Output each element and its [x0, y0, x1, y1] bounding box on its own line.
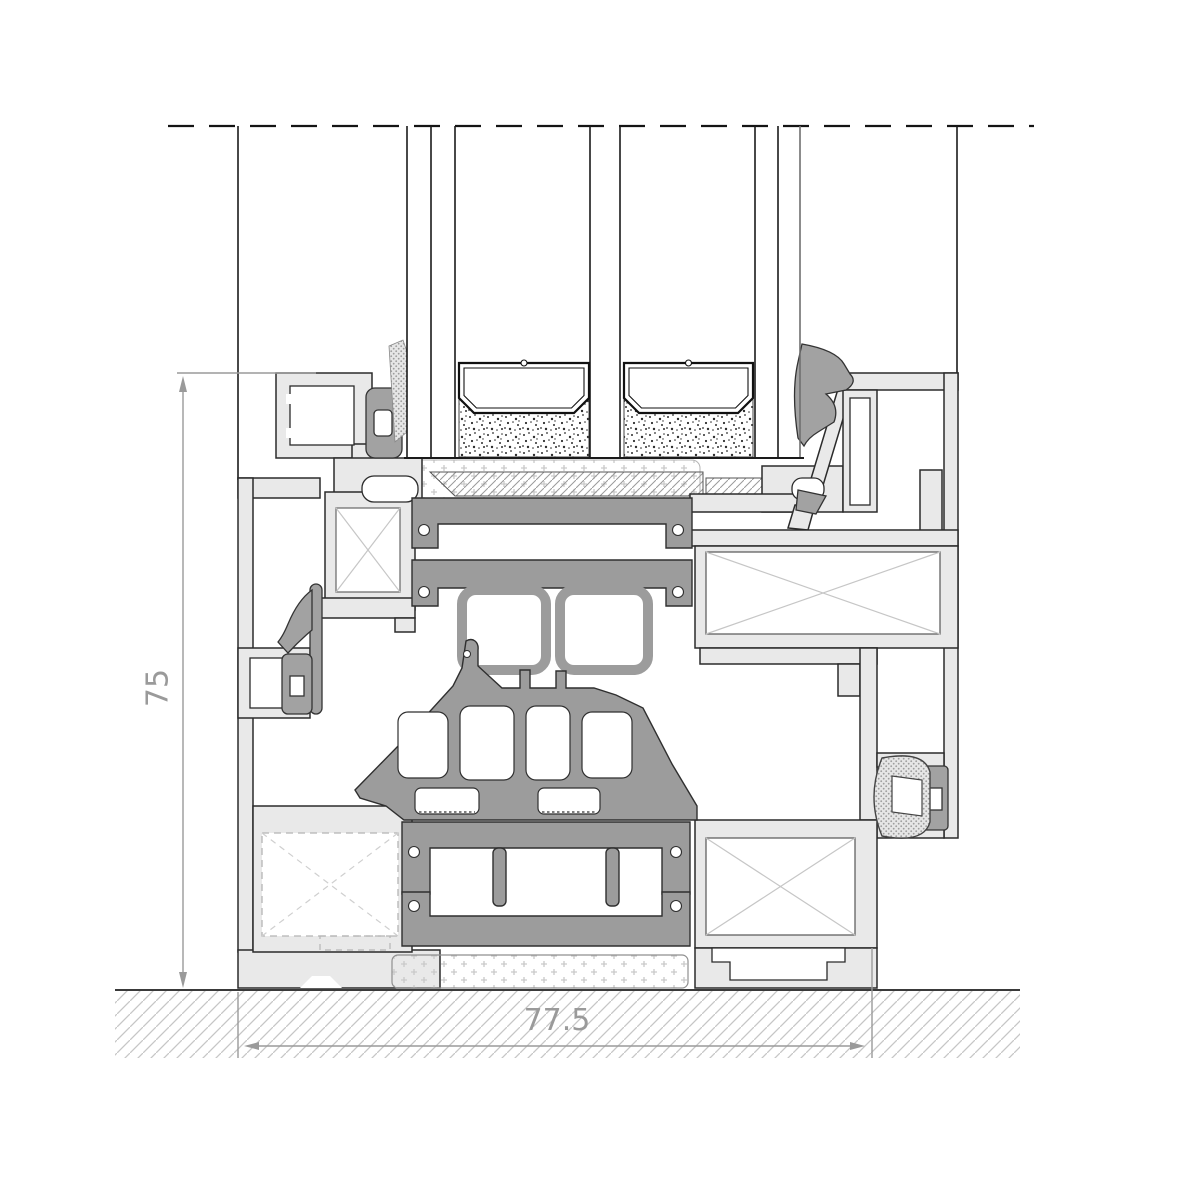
frame-thermal-bar-lower	[402, 892, 690, 946]
screw-port-bottom-left-dashed	[262, 833, 398, 950]
sash-thermal-bar-upper	[412, 498, 692, 548]
screw-port-sash	[336, 508, 400, 592]
glazing-spacer-bars	[459, 360, 753, 413]
wiper-gasket-left	[278, 590, 312, 653]
frame-thermal-bar-upper	[402, 822, 690, 894]
bulb-gasket	[874, 756, 930, 838]
screw-port-right-large	[706, 552, 940, 634]
width-dimension-label: 77.5	[524, 1003, 591, 1038]
glazing-unit	[389, 126, 804, 458]
base-setting-pad	[392, 955, 688, 988]
window-sill-section-drawing: 75 77.5	[0, 0, 1200, 1200]
height-dimension-label: 75	[141, 669, 176, 707]
screw-port-bottom-right	[706, 838, 855, 935]
technical-drawing-canvas: 75 77.5	[0, 0, 1200, 1200]
frame-top-web-right	[843, 373, 958, 390]
